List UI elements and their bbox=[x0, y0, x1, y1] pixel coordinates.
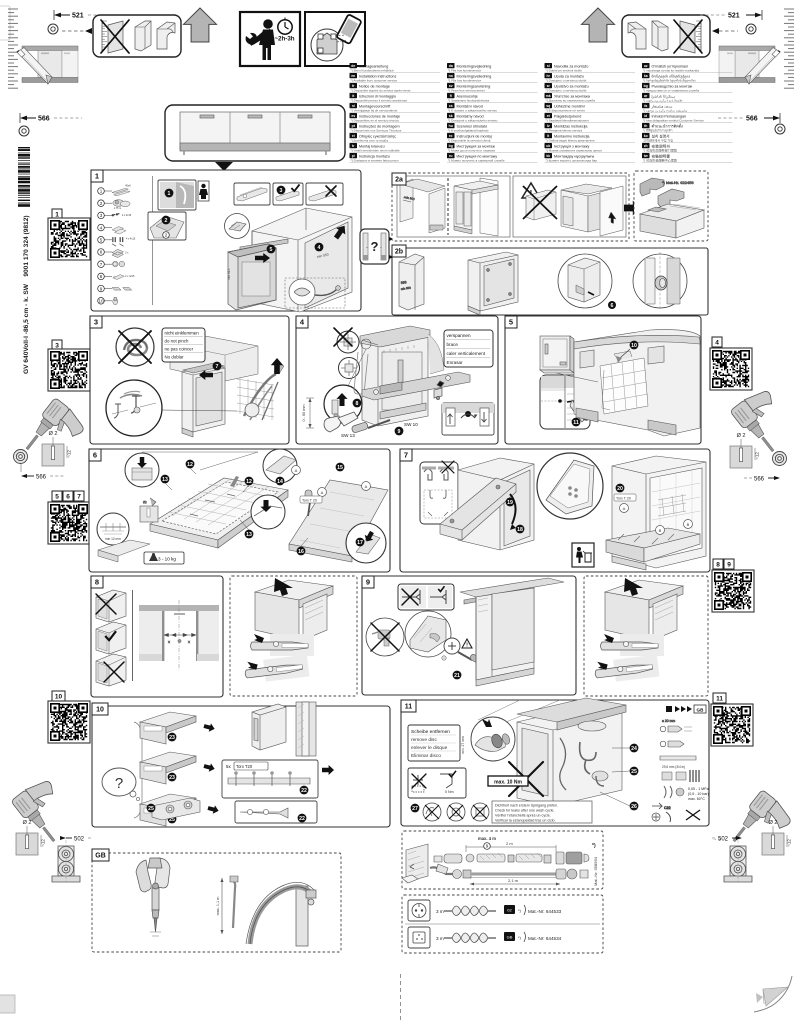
svg-text:26: 26 bbox=[631, 804, 637, 810]
svg-text:*) ءﻼﻤﻌﻟا ﺔﻣﺪﺧ ﺰﻛﺮﻣ ﻦﻣ ﺮﻓﻮﺘﻣ: *) ءﻼﻤﻌﻟا ﺔﻣﺪﺧ ﺰﻛﺮﻣ ﻦﻣ ﺮﻓﻮﺘﻣ bbox=[643, 99, 683, 103]
svg-text:고객센터에서 구입 가능: 고객센터에서 구입 가능 bbox=[643, 138, 673, 143]
svg-text:4: 4 bbox=[715, 339, 719, 346]
svg-text:Ø 2: Ø 2 bbox=[769, 820, 778, 826]
svg-text:Ø 2: Ø 2 bbox=[737, 433, 746, 439]
svg-text:(1): (1) bbox=[143, 500, 147, 504]
svg-text:24: 24 bbox=[631, 746, 637, 752]
svg-text:25: 25 bbox=[631, 769, 637, 775]
svg-text:*) Saatavana huoltopalvelusta: *) Saatavana huoltopalvelusta bbox=[448, 99, 489, 103]
svg-text:18: 18 bbox=[517, 527, 523, 533]
svg-text:9: 9 bbox=[486, 844, 489, 849]
svg-text:10: 10 bbox=[98, 298, 104, 303]
svg-text:02: 02 bbox=[507, 908, 512, 913]
svg-text:7: 7 bbox=[77, 493, 81, 500]
svg-text:4: 4 bbox=[100, 225, 103, 230]
svg-text:~12: ~12 bbox=[787, 839, 792, 847]
svg-text:max. 1,1 m: max. 1,1 m bbox=[216, 897, 220, 916]
svg-text:min 815: min 815 bbox=[227, 268, 231, 280]
svg-text:0,05 - 1 MPa: 0,05 - 1 MPa bbox=[688, 787, 709, 791]
svg-text:Eliminar disco: Eliminar disco bbox=[411, 753, 441, 759]
svg-text:9: 9 bbox=[366, 578, 370, 587]
svg-text:fi: fi bbox=[450, 94, 452, 98]
svg-text:*) Verkrijgbaar bij de service: *) Verkrijgbaar bij de servicedienst bbox=[351, 109, 398, 113]
svg-text:*) Достапно во сервисната служ: *) Достапно во сервисната служба bbox=[546, 99, 596, 103]
svg-text:3 m: 3 m bbox=[436, 936, 444, 941]
svg-text:3: 3 bbox=[94, 318, 98, 327]
svg-text:*) Disponíveis nos Serviços Té: *) Disponíveis nos Serviços Técnicos bbox=[351, 129, 402, 133]
svg-text:Dichtheit nach erstem Spülgang: Dichtheit nach erstem Spülgang prüfen. bbox=[495, 804, 558, 808]
svg-text:5: 5 bbox=[509, 318, 513, 327]
svg-text:tw: tw bbox=[644, 154, 648, 158]
svg-text:3: 3 bbox=[55, 342, 59, 349]
svg-text:A: A bbox=[295, 468, 298, 473]
svg-text:*) mijozlarga xizmat ko'rsatis: *) mijozlarga xizmat ko'rsatish markazid… bbox=[643, 69, 699, 73]
svg-text:*) K dostání u zákaznického se: *) K dostání u zákaznického servisu bbox=[448, 109, 497, 113]
svg-text:Ø 2: Ø 2 bbox=[49, 431, 58, 437]
svg-text:2: 2 bbox=[165, 233, 168, 238]
svg-text:GV 640Voll-I -86,5 cm - k. SW: GV 640Voll-I -86,5 cm - k. SW 9001 170 3… bbox=[23, 215, 30, 374]
svg-text:12: 12 bbox=[246, 479, 252, 485]
svg-text:8: 8 bbox=[716, 561, 720, 568]
svg-text:nl: nl bbox=[352, 104, 355, 108]
svg-text:10: 10 bbox=[631, 343, 637, 349]
svg-text:6: 6 bbox=[611, 303, 614, 309]
svg-text:2,1 m: 2,1 m bbox=[508, 878, 519, 883]
svg-text:id: id bbox=[644, 114, 647, 118]
svg-text:*) Galima įsigyti klientų apta: *) Galima įsigyti klientų aptarnavime bbox=[546, 139, 595, 143]
svg-text:*) Disponibili presso il servi: *) Disponibili presso il servizio assist… bbox=[351, 99, 408, 103]
svg-text:10: 10 bbox=[96, 707, 104, 714]
svg-text:→ 5: → 5 bbox=[712, 836, 721, 842]
svg-text:?: ? bbox=[371, 239, 379, 254]
svg-text:*) Dostupné u zákazníckeho ser: *) Dostupné u zákazníckeho servisu bbox=[448, 119, 498, 123]
svg-text:*) Може да се получи от сервиз: *) Може да се получи от сервиза bbox=[448, 149, 495, 153]
svg-text:sq: sq bbox=[546, 104, 550, 108]
svg-text:566: 566 bbox=[754, 477, 765, 483]
svg-text:23: 23 bbox=[169, 775, 175, 781]
svg-text:Mat.-Nr: 644533: Mat.-Nr: 644533 bbox=[528, 909, 562, 914]
svg-text:A: A bbox=[321, 490, 324, 495]
svg-text:14: 14 bbox=[277, 479, 283, 485]
svg-text:15: 15 bbox=[337, 465, 343, 471]
svg-text:25: 25 bbox=[148, 806, 154, 812]
svg-text:ko: ko bbox=[644, 134, 648, 138]
svg-text:502: 502 bbox=[74, 837, 85, 843]
svg-text:*) نﺎﻳﺮﺘﺸﻣ تﺎﻣﺪﺧ ﺰﻛﺮﻣ رد دﻮﺟﻮﻣ: *) نﺎﻳﺮﺘﺸﻣ تﺎﻣﺪﺧ ﺰﻛﺮﻣ رد دﻮﺟﻮﻣ bbox=[643, 109, 687, 113]
svg-text:5: 5 bbox=[55, 493, 59, 500]
svg-text:max. 10 Nm: max. 10 Nm bbox=[494, 780, 522, 786]
svg-text:19: 19 bbox=[507, 500, 513, 506]
svg-text:*) 可向售後服務中心索取: *) 可向售後服務中心索取 bbox=[643, 158, 677, 163]
svg-text:el: el bbox=[352, 134, 355, 138]
svg-text:lv: lv bbox=[547, 124, 550, 128]
svg-text:45x8: 45x8 bbox=[125, 185, 131, 188]
svg-text:hu: hu bbox=[449, 124, 453, 128]
svg-text:*) Διατίθενται από το σέρβις: *) Διατίθενται από το σέρβις bbox=[351, 139, 389, 143]
svg-text:*) E disponueshme në servis: *) E disponueshme në servis bbox=[546, 109, 586, 113]
svg-text:sv: sv bbox=[449, 84, 453, 88]
svg-text:kk: kk bbox=[546, 154, 550, 158]
svg-text:521: 521 bbox=[72, 13, 84, 20]
svg-text:Vérifier l’étanchéité après un: Vérifier l’étanchéité après un cycle. bbox=[495, 814, 551, 818]
svg-text:10: 10 bbox=[55, 693, 63, 700]
svg-text:8: 8 bbox=[356, 401, 359, 407]
svg-text:0 Nm: 0 Nm bbox=[445, 790, 454, 794]
svg-text:*) Available from customer ser: *) Available from customer service bbox=[351, 79, 398, 83]
svg-text:*) Қызмет көрсету орталығында: *) Қызмет көрсету орталығында бар bbox=[546, 159, 598, 163]
svg-text:566: 566 bbox=[38, 116, 50, 123]
svg-text:6: 6 bbox=[100, 250, 103, 255]
svg-text:SW 13: SW 13 bbox=[341, 433, 355, 438]
svg-text:nicht einklemmen: nicht einklemmen bbox=[165, 331, 200, 336]
svg-text:Torx T 20: Torx T 20 bbox=[616, 497, 631, 501]
svg-text:SW 10: SW 10 bbox=[404, 422, 418, 427]
svg-text:fa: fa bbox=[644, 104, 647, 108]
svg-text:3: 3 bbox=[100, 213, 103, 218]
svg-text:*) Dobite pri servisni službi: *) Dobite pri servisni službi bbox=[546, 69, 583, 73]
svg-text:4 x 4x15: 4 x 4x15 bbox=[126, 238, 136, 241]
svg-text:5: 5 bbox=[100, 237, 103, 242]
svg-text:*) Yetkili servislerden temin: *) Yetkili servislerden temin edilebilir bbox=[351, 149, 400, 153]
svg-text:521: 521 bbox=[728, 13, 740, 20]
svg-text:*) Fås hos kundeservice: *) Fås hos kundeservice bbox=[448, 79, 481, 83]
svg-text:11: 11 bbox=[573, 420, 579, 426]
svg-text:en: en bbox=[351, 74, 355, 78]
svg-text:Scheibe entfernen: Scheibe entfernen bbox=[411, 729, 450, 735]
svg-text:2 x 4x15: 2 x 4x15 bbox=[122, 214, 132, 217]
svg-text:*) Можна отримати в сервісному: *) Можна отримати в сервісному центрі bbox=[546, 149, 603, 153]
svg-text:3: 3 bbox=[280, 188, 283, 194]
svg-text:bg: bg bbox=[644, 84, 648, 88]
svg-text:brace: brace bbox=[447, 342, 459, 347]
svg-text:~12: ~12 bbox=[755, 452, 760, 460]
svg-text:ro: ro bbox=[449, 134, 452, 138]
svg-text:Ø 2: Ø 2 bbox=[23, 820, 32, 826]
svg-text:*) 可向售后服务部门索取: *) 可向售后服务部门索取 bbox=[643, 148, 677, 153]
svg-text:1,75 m: 1,75 m bbox=[114, 207, 122, 210]
svg-text:566: 566 bbox=[36, 475, 47, 481]
svg-text:mk: mk bbox=[546, 94, 551, 98]
svg-text:8: 8 bbox=[95, 578, 99, 587]
svg-text:do not pinch: do not pinch bbox=[165, 339, 189, 344]
svg-text:29,6 mm (3/4 in): 29,6 mm (3/4 in) bbox=[662, 765, 685, 769]
svg-text:2a: 2a bbox=[395, 177, 403, 184]
svg-text:11: 11 bbox=[405, 704, 413, 711]
svg-text:9: 9 bbox=[398, 429, 401, 435]
svg-text:verspannen: verspannen bbox=[447, 333, 471, 338]
svg-text:6: 6 bbox=[93, 451, 97, 460]
svg-text:12: 12 bbox=[187, 462, 193, 468]
svg-text:*) มีที่ศูนย์บริการลูกค้า: *) มีที่ศูนย์บริการลูกค้า bbox=[643, 129, 673, 133]
svg-text:23: 23 bbox=[169, 735, 175, 741]
svg-text:17: 17 bbox=[357, 540, 363, 546]
svg-text:11: 11 bbox=[716, 695, 723, 702]
svg-text:16: 16 bbox=[298, 549, 304, 555]
svg-text:Mat.-Nr: 644534: Mat.-Nr: 644534 bbox=[528, 936, 562, 941]
svg-text:3 m: 3 m bbox=[436, 909, 444, 914]
svg-text:No doblar: No doblar bbox=[165, 355, 185, 360]
svg-text:ru: ru bbox=[449, 154, 452, 158]
svg-text:Torx T20: Torx T20 bbox=[236, 764, 253, 769]
svg-text:0 - 60 mm: 0 - 60 mm bbox=[302, 404, 306, 421]
svg-text:*) Disponibles en el servicio: *) Disponibles en el servicio técnico bbox=[351, 119, 400, 123]
svg-text:A: A bbox=[623, 506, 626, 511]
svg-text:C22: C22 bbox=[664, 806, 671, 810]
svg-text:?: ? bbox=[115, 775, 123, 792]
svg-text:B: B bbox=[687, 522, 690, 527]
svg-text:*) სერვისცენტრში ხელმისაწვდომი: *) სერვისცენტრში ხელმისაწვდომია bbox=[643, 79, 696, 83]
svg-text:6: 6 bbox=[66, 493, 70, 500]
svg-text:*) Disponibile la serviciul cl: *) Disponibile la serviciul clienţi bbox=[448, 139, 491, 143]
svg-text:*) Mat-Nr. 622456: *) Mat-Nr. 622456 bbox=[662, 180, 694, 185]
svg-text:~12: ~12 bbox=[67, 450, 72, 458]
svg-text:A: A bbox=[365, 484, 368, 489]
svg-text:no: no bbox=[449, 74, 453, 78]
svg-text:*) Dostupno u servisnoj službi: *) Dostupno u servisnoj službi bbox=[546, 79, 587, 83]
svg-text:*) Можно получить в сервисной: *) Можно получить в сервисной службе bbox=[448, 159, 505, 163]
svg-text:2b: 2b bbox=[395, 249, 403, 256]
svg-text:da: da bbox=[449, 64, 453, 68]
svg-text:22: 22 bbox=[299, 816, 305, 822]
svg-text:*) Finns hos servicecentret: *) Finns hos servicecentret bbox=[448, 89, 485, 93]
svg-text:de: de bbox=[351, 64, 355, 68]
svg-text:~12: ~12 bbox=[41, 839, 46, 847]
svg-text:8: 8 bbox=[100, 274, 103, 279]
svg-text:ka: ka bbox=[644, 74, 648, 78]
svg-text:7: 7 bbox=[404, 451, 408, 460]
svg-text:x: x bbox=[188, 639, 190, 644]
svg-text:*) A vevőszolgálatnál kapható: *) A vevőszolgálatnál kapható bbox=[448, 129, 489, 133]
svg-text:21: 21 bbox=[454, 673, 460, 679]
svg-text:2 x 4x15: 2 x 4x15 bbox=[125, 275, 135, 278]
svg-text:5: 5 bbox=[270, 247, 273, 253]
svg-text:uz: uz bbox=[644, 64, 648, 68]
svg-text:7: 7 bbox=[100, 262, 103, 267]
svg-text:GB: GB bbox=[697, 708, 705, 713]
svg-text:22: 22 bbox=[301, 788, 307, 794]
svg-text:enlever le disque: enlever le disque bbox=[411, 745, 448, 751]
svg-text:max. 60°C: max. 60°C bbox=[688, 797, 705, 801]
svg-text:Check for leaks after one wash: Check for leaks after one wash cycle. bbox=[495, 809, 555, 813]
svg-text:Mat.-Nr: 358564: Mat.-Nr: 358564 bbox=[593, 856, 598, 886]
svg-text:2 m: 2 m bbox=[506, 841, 513, 846]
svg-text:1: 1 bbox=[168, 191, 171, 197]
svg-text:a 20 mm: a 20 mm bbox=[662, 719, 675, 723]
svg-text:GB: GB bbox=[507, 935, 513, 940]
svg-text:5x: 5x bbox=[226, 764, 231, 769]
svg-text:max. 4 m: max. 4 m bbox=[478, 836, 496, 841]
svg-text:20: 20 bbox=[617, 486, 623, 492]
svg-text:Torx T 20: Torx T 20 bbox=[302, 499, 317, 503]
svg-text:9: 9 bbox=[100, 286, 103, 291]
svg-text:min. 27 mm: min. 27 mm bbox=[461, 736, 465, 754]
svg-text:*) Pieejama klientu servisā: *) Pieejama klientu servisā bbox=[546, 129, 583, 133]
svg-text:(0,5 - 10 bar): (0,5 - 10 bar) bbox=[688, 792, 709, 796]
svg-text:1: 1 bbox=[55, 211, 59, 218]
svg-text:1: 1 bbox=[95, 172, 99, 181]
svg-text:1: 1 bbox=[100, 189, 103, 194]
svg-text:*) bisa didapatkan melalui Cus: *) bisa didapatkan melalui Customer Serv… bbox=[643, 119, 704, 123]
svg-text:*) Fås hos kundeservice: *) Fås hos kundeservice bbox=[448, 69, 481, 73]
svg-text:13: 13 bbox=[162, 477, 168, 483]
svg-text:cs: cs bbox=[449, 104, 453, 108]
svg-text:*) Saadaval klienditeeninduses: *) Saadaval klienditeenindusest bbox=[546, 119, 589, 123]
svg-text:uk: uk bbox=[546, 144, 550, 148]
svg-text:*) Beim Kundendienst erhältlic: *) Beim Kundendienst erhältlich bbox=[351, 69, 394, 73]
svg-text:566: 566 bbox=[746, 116, 758, 123]
svg-text:B: B bbox=[659, 528, 662, 533]
svg-text:3 - 10 kg: 3 - 10 kg bbox=[158, 557, 176, 562]
svg-text:*) Dostępna w serwisie fabrycz: *) Dostępna w serwisie fabrycznym bbox=[351, 159, 400, 163]
svg-text:caler verticalement: caler verticalement bbox=[447, 351, 486, 356]
svg-text:th: th bbox=[644, 124, 647, 128]
svg-text:zh: zh bbox=[644, 144, 648, 148]
svg-text:min 12 mm: min 12 mm bbox=[105, 537, 121, 541]
svg-text:sl: sl bbox=[547, 64, 550, 68]
svg-text:bg: bg bbox=[449, 144, 453, 148]
svg-text:Verificar la estanqueidad tras: Verificar la estanqueidad tras un ciclo. bbox=[495, 819, 556, 823]
svg-text:ne pas coincer: ne pas coincer bbox=[165, 347, 194, 352]
svg-text:9: 9 bbox=[727, 561, 731, 568]
svg-text:sk: sk bbox=[449, 114, 453, 118]
svg-text:4: 4 bbox=[318, 245, 321, 251]
svg-text:remove disc: remove disc bbox=[411, 737, 437, 743]
svg-text:x: x bbox=[168, 639, 170, 644]
svg-text:es: es bbox=[351, 114, 355, 118]
svg-text:pl: pl bbox=[352, 154, 355, 158]
svg-text:2: 2 bbox=[165, 218, 168, 224]
svg-text:*) предоставя се от сервизната: *) предоставя се от сервизната служба bbox=[643, 89, 699, 93]
svg-text:7: 7 bbox=[216, 364, 219, 370]
svg-text:13: 13 bbox=[246, 532, 252, 538]
svg-text:27: 27 bbox=[412, 806, 418, 812]
svg-text:!: ! bbox=[466, 643, 468, 649]
svg-text:*) Dostupno u servisnoj službi: *) Dostupno u servisnoj službi bbox=[546, 89, 587, 93]
svg-text:598: 598 bbox=[401, 280, 407, 285]
svg-text:Enrasar: Enrasar bbox=[447, 360, 464, 365]
svg-text:GB: GB bbox=[95, 853, 106, 860]
svg-text:*) Disponible auprès du servic: *) Disponible auprès du service après-ve… bbox=[351, 89, 411, 93]
svg-text:*): *) bbox=[592, 843, 596, 849]
svg-text:2: 2 bbox=[100, 201, 103, 206]
svg-text:~2h-3h: ~2h-3h bbox=[274, 36, 294, 43]
